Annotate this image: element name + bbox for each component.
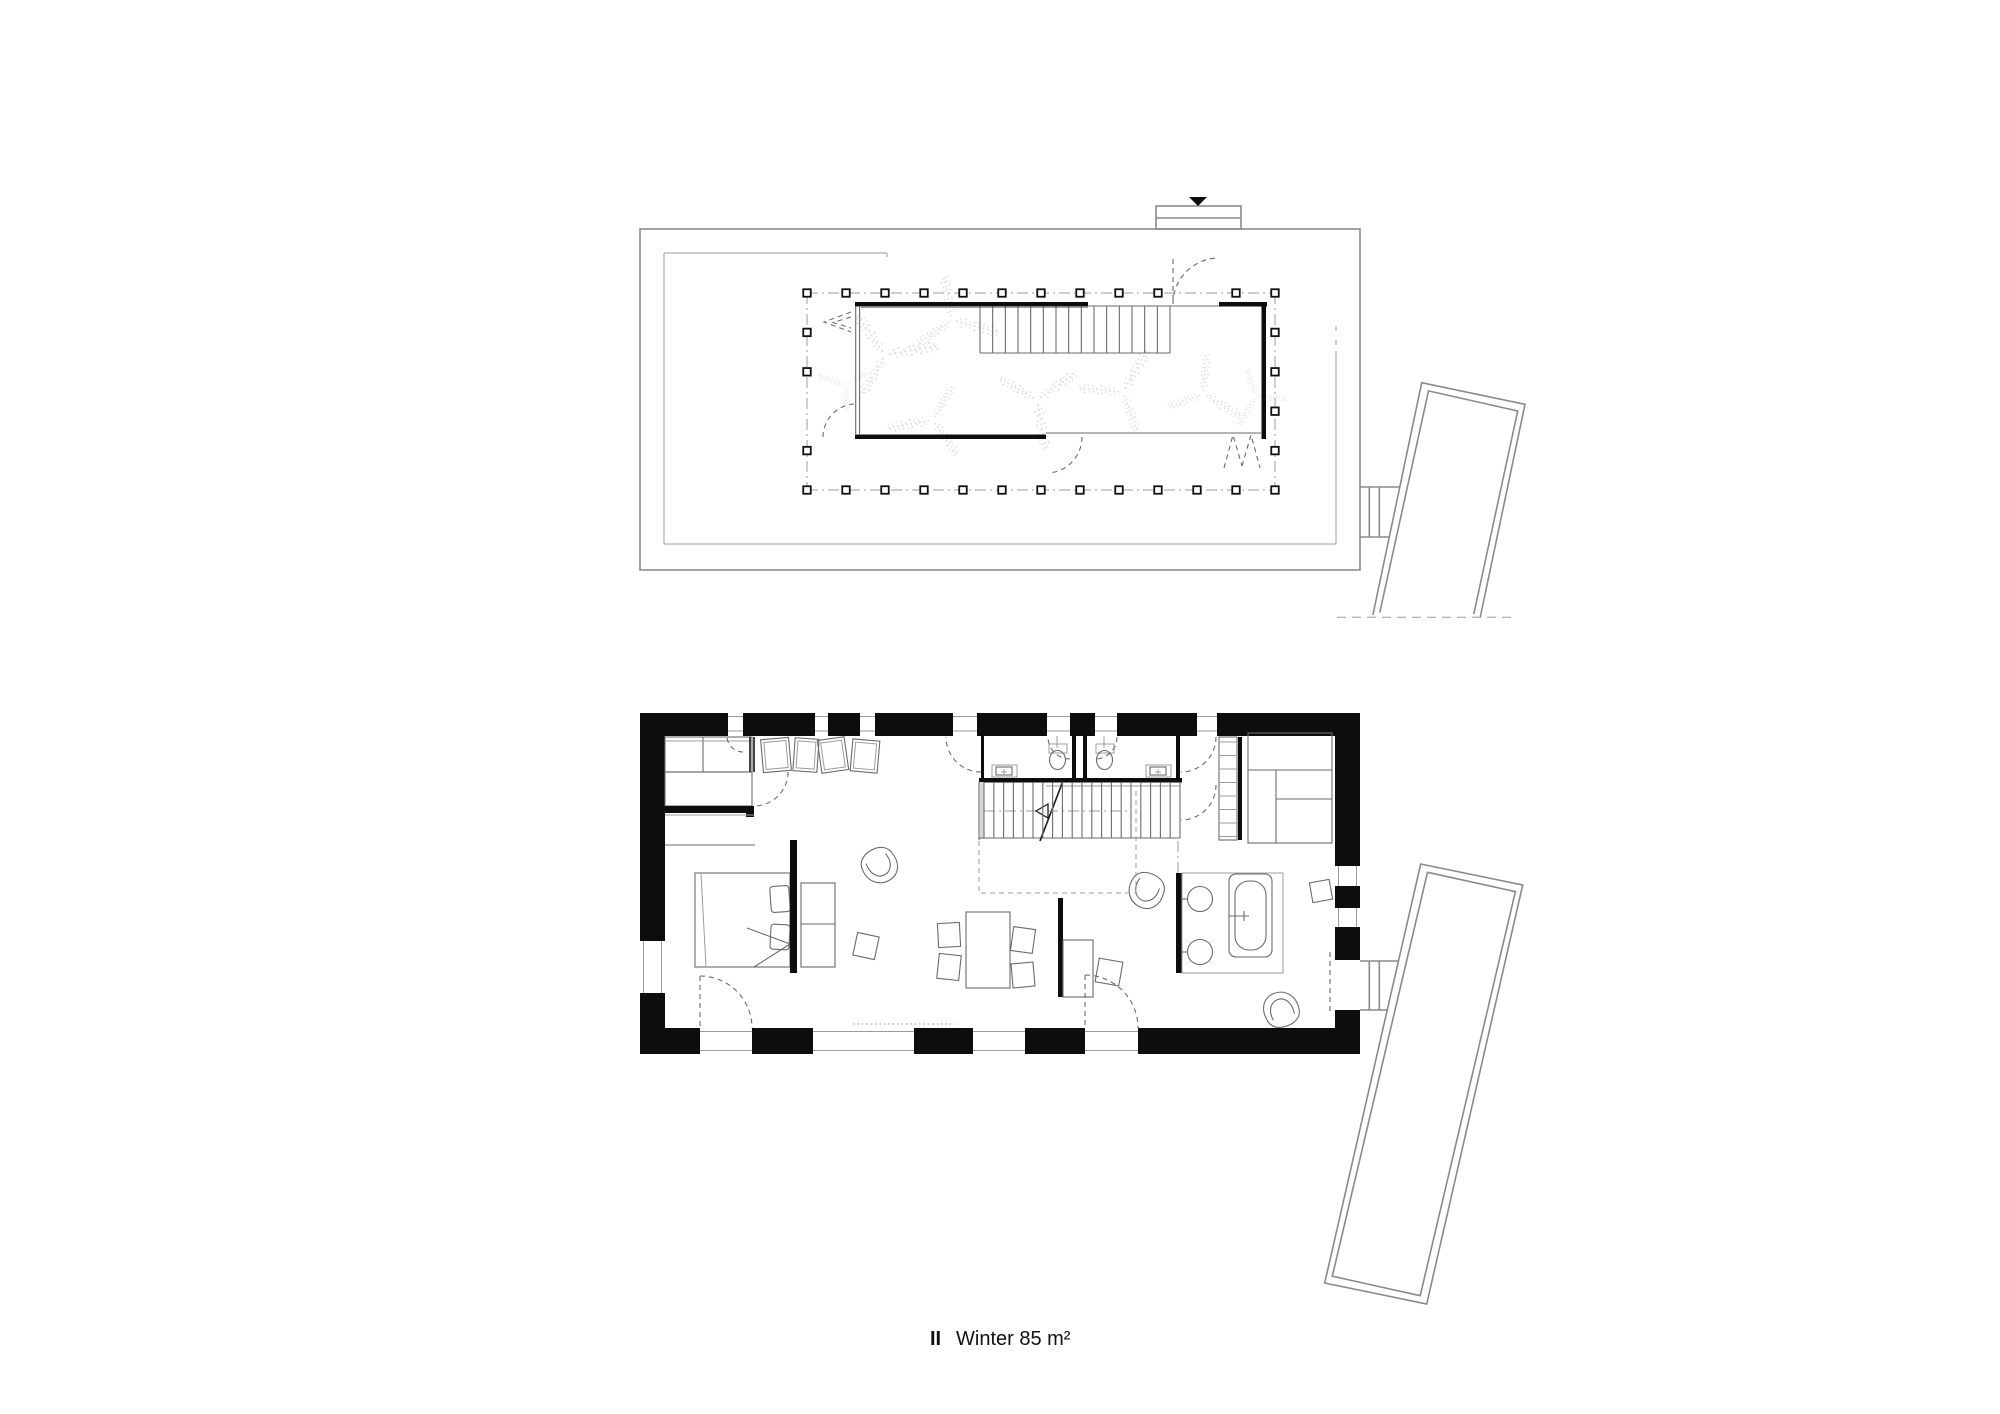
architectural-drawing-page: II Winter 85 m² — [0, 0, 2000, 1414]
kitchen-island-bathtub — [1176, 873, 1283, 973]
annex-outline-roof — [1373, 383, 1525, 617]
column-post — [1037, 486, 1045, 494]
bathrooms — [979, 736, 1182, 783]
armchair — [856, 842, 903, 890]
column-post — [803, 368, 811, 376]
column-post — [1193, 486, 1201, 494]
column-post — [842, 486, 850, 494]
floor-marks — [853, 952, 1330, 1024]
armchair — [1123, 867, 1169, 913]
main-floor-plan — [640, 713, 1523, 1305]
foliage-plant — [1218, 366, 1292, 440]
column-post — [1115, 486, 1123, 494]
column-post — [1154, 289, 1162, 297]
column-post — [920, 486, 928, 494]
column-post — [959, 289, 967, 297]
column-post — [842, 289, 850, 297]
column-post — [881, 289, 889, 297]
foliage-plant — [882, 383, 968, 467]
column-post — [1271, 486, 1279, 494]
column-post — [1271, 447, 1279, 455]
armchairs — [856, 842, 1303, 1032]
floor-plan-drawing: II Winter 85 m² — [0, 0, 2000, 1414]
column-post — [1037, 289, 1045, 297]
foliage-plant — [1164, 348, 1259, 443]
exterior-walls — [640, 713, 1360, 1054]
column-post — [803, 447, 811, 455]
staircase — [979, 781, 1180, 893]
column-post — [920, 289, 928, 297]
column-post — [959, 486, 967, 494]
plan-title-label: Winter 85 m² — [956, 1328, 1071, 1350]
foliage-plant — [914, 271, 1009, 365]
column-post — [1076, 289, 1084, 297]
foliage-plant — [1071, 329, 1176, 435]
column-post — [1271, 368, 1279, 376]
plan-caption: II Winter 85 m² — [930, 1328, 1071, 1350]
bed — [695, 873, 790, 967]
column-post — [1115, 289, 1123, 297]
wardrobe — [665, 737, 752, 806]
column-post — [1271, 329, 1279, 337]
dining-set — [937, 912, 1036, 988]
column-post — [998, 486, 1006, 494]
column-post — [881, 486, 889, 494]
kitchen-shelves — [1219, 733, 1332, 843]
column-post — [1232, 289, 1240, 297]
column-post — [803, 289, 811, 297]
column-post — [1271, 289, 1279, 297]
column-post — [1232, 486, 1240, 494]
plan-level-index: II — [930, 1328, 941, 1350]
column-post — [803, 329, 811, 337]
column-post — [803, 486, 811, 494]
interior-walls — [665, 737, 755, 845]
desk-partition — [1058, 898, 1123, 997]
foliage-plant — [996, 361, 1089, 456]
headboard-partition — [790, 840, 797, 973]
column-post — [1271, 407, 1279, 415]
armchair — [1259, 987, 1304, 1032]
bed-side-shelf — [801, 883, 835, 967]
column-post — [998, 289, 1006, 297]
column-post — [1154, 486, 1162, 494]
picture-frames — [761, 737, 880, 773]
roof-terrace-plan — [640, 197, 1525, 617]
column-post — [1076, 486, 1084, 494]
